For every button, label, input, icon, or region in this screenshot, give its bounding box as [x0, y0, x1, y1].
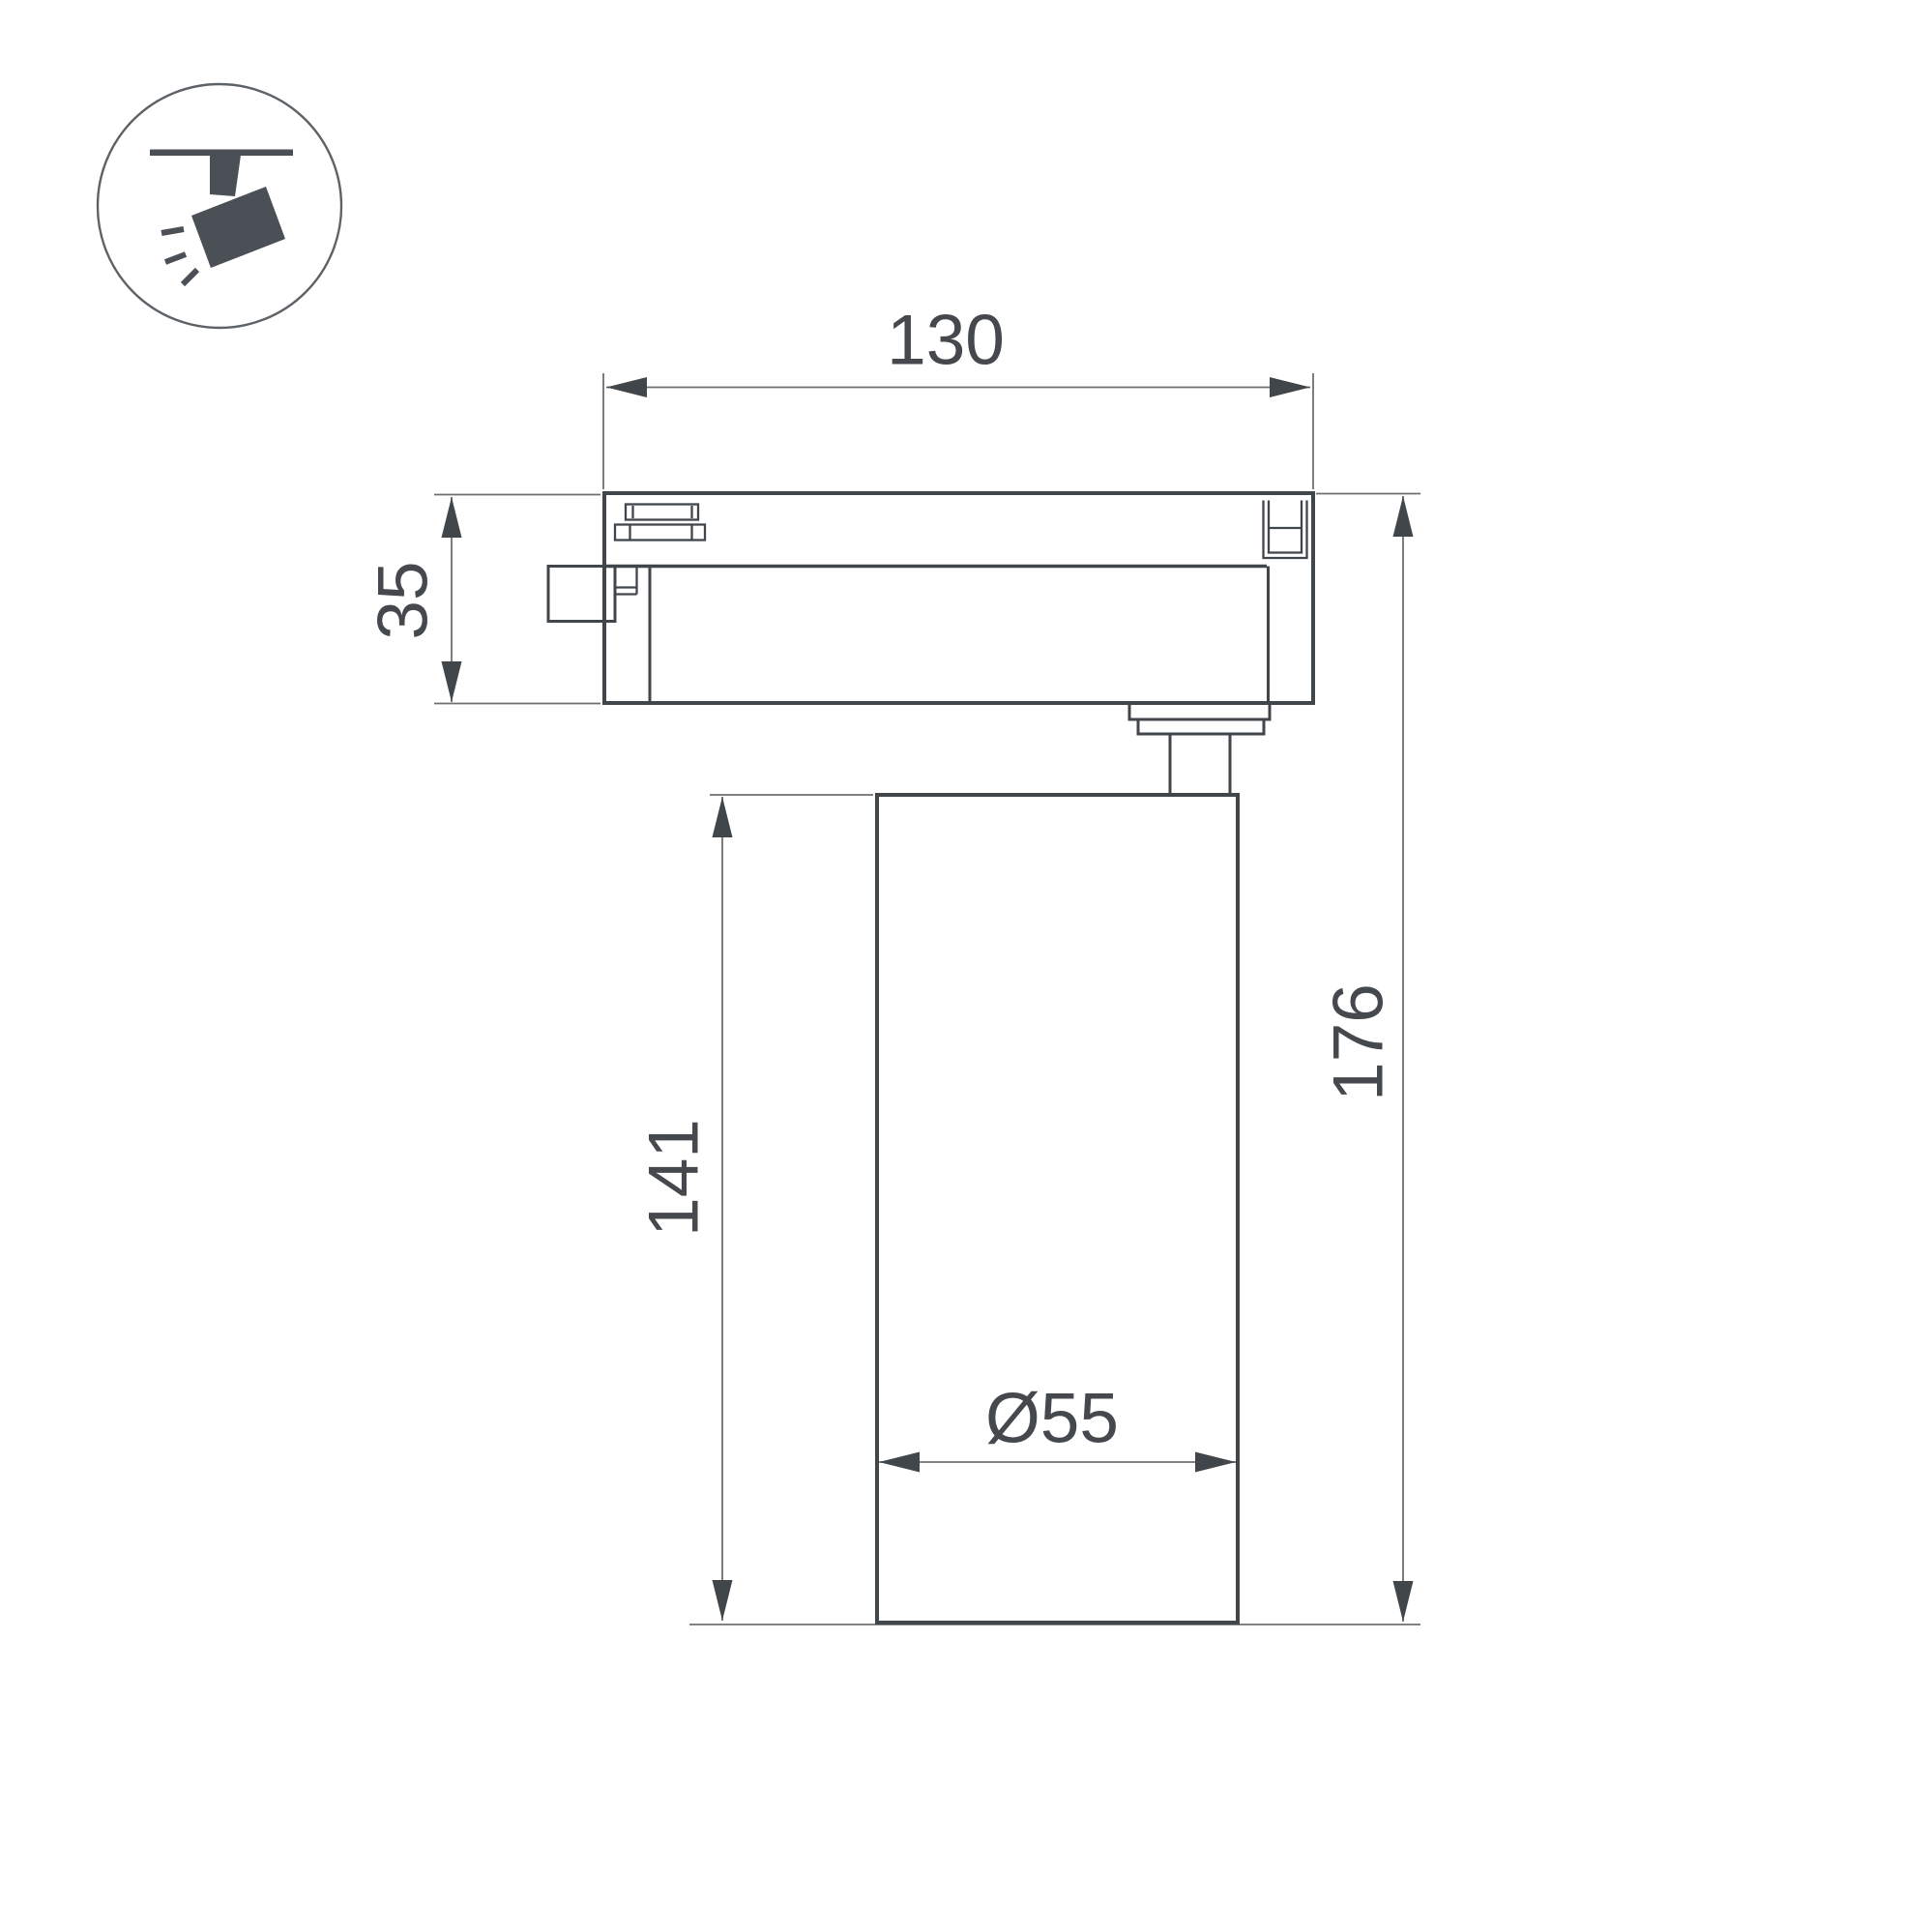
arrow-left-icon — [606, 377, 647, 397]
dim-35-label: 35 — [365, 561, 443, 639]
dim-130-label: 130 — [887, 302, 1005, 380]
dimension-176: 176 — [1320, 496, 1414, 1622]
dim-176-label: 176 — [1320, 983, 1398, 1101]
arrow-left-icon — [879, 1452, 920, 1473]
swivel-joint — [1129, 703, 1270, 795]
arrow-up-icon — [1393, 496, 1414, 537]
track-bar-icon — [150, 150, 293, 157]
extension-lines — [434, 373, 1420, 1625]
dimension-diameter-55: Ø55 — [879, 1380, 1236, 1473]
track-adapter-outline — [548, 493, 1313, 703]
dimension-130: 130 — [606, 302, 1310, 398]
arrow-right-icon — [1195, 1452, 1236, 1473]
arrow-down-icon — [713, 1580, 733, 1621]
dim-55-label: Ø55 — [985, 1380, 1119, 1458]
track-spotlight-dimension-drawing: 130 35 141 176 Ø55 — [0, 0, 1932, 1932]
adapter-lock-lever — [548, 567, 637, 622]
arrow-right-icon — [1270, 377, 1310, 397]
lamp-body — [877, 795, 1238, 1623]
technical-drawing-page: 130 35 141 176 Ø55 — [0, 0, 1932, 1932]
adapter-clip — [1264, 501, 1307, 559]
dimension-141: 141 — [635, 797, 733, 1621]
adapter-contacts — [615, 505, 705, 541]
track-spotlight-icon — [98, 84, 341, 328]
adapter-housing — [604, 493, 1313, 703]
dim-141-label: 141 — [635, 1119, 714, 1237]
joint-plate-lower — [1138, 719, 1264, 734]
joint-plate-upper — [1129, 703, 1270, 719]
arrow-up-icon — [713, 797, 733, 837]
arrow-up-icon — [442, 497, 462, 538]
arrow-down-icon — [442, 661, 462, 702]
dimension-35: 35 — [365, 497, 462, 702]
joint-stem — [1170, 734, 1230, 795]
lamp-body-outline — [877, 795, 1238, 1623]
arrow-down-icon — [1393, 1581, 1414, 1622]
